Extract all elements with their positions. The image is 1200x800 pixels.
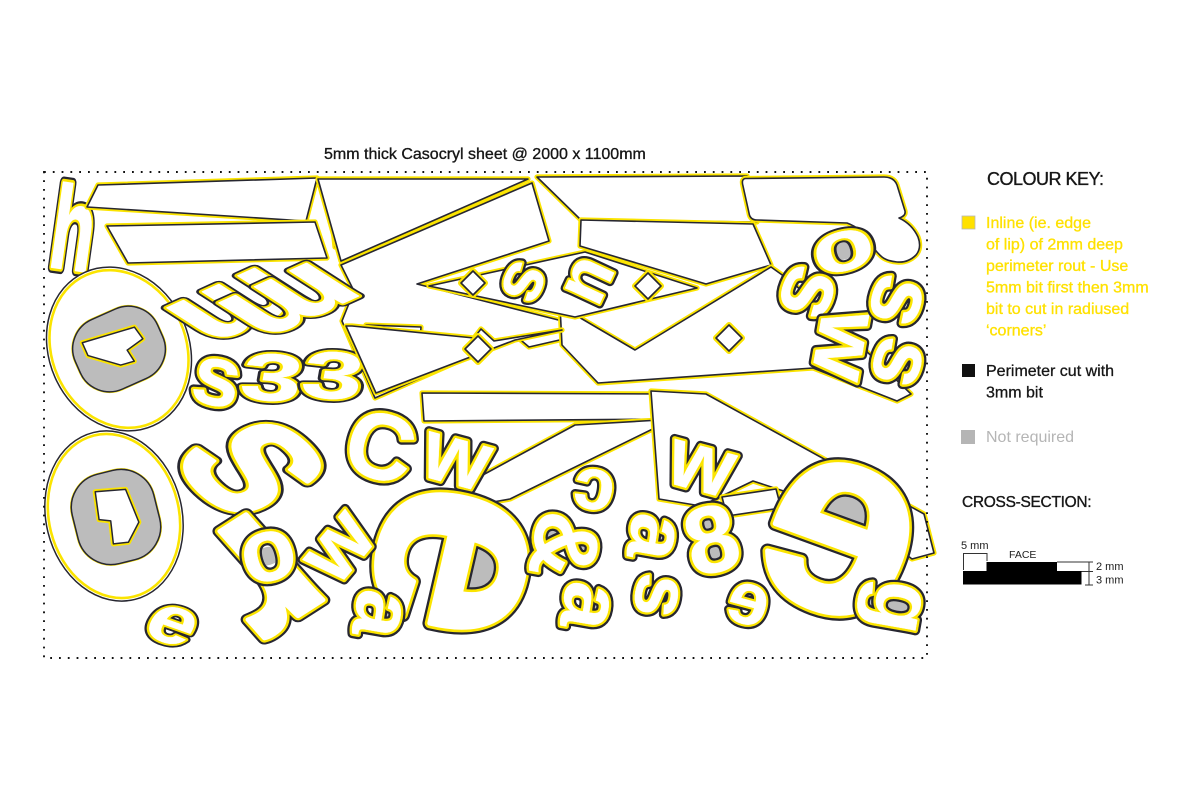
svg-text:5 mm: 5 mm bbox=[961, 540, 989, 552]
svg-text:2 mm: 2 mm bbox=[1096, 561, 1124, 573]
svg-text:Not required: Not required bbox=[986, 429, 1074, 446]
svg-text:5mm thick Casocryl sheet @ 200: 5mm thick Casocryl sheet @ 2000 x 1100mm bbox=[324, 146, 646, 163]
svg-text:COLOUR KEY:: COLOUR KEY: bbox=[987, 169, 1104, 189]
svg-text:CROSS-SECTION:: CROSS-SECTION: bbox=[962, 494, 1091, 511]
svg-text:3 mm: 3 mm bbox=[1096, 575, 1124, 587]
svg-text:FACE: FACE bbox=[1009, 549, 1036, 561]
